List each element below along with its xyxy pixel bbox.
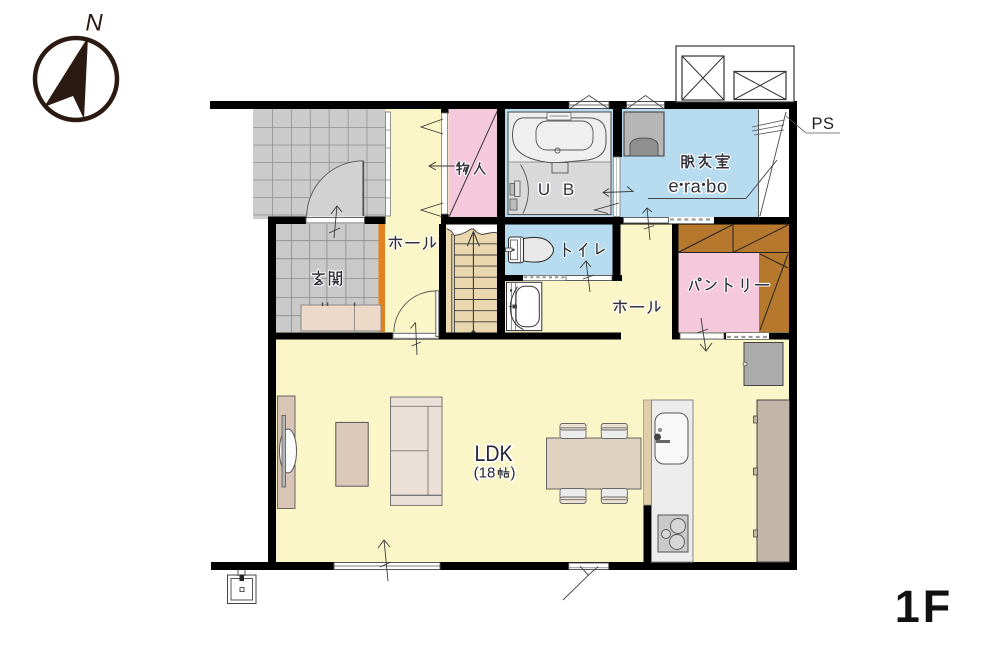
svg-text:(18: (18 [474,465,496,482]
svg-text:1F: 1F [895,581,954,632]
svg-text:N: N [85,10,103,37]
svg-text:): ) [511,465,516,482]
svg-text:LDK: LDK [475,441,513,466]
svg-text:PS: PS [811,115,834,133]
svg-text:U B: U B [538,180,578,199]
svg-text:e•ra•bo: e•ra•bo [668,175,727,196]
